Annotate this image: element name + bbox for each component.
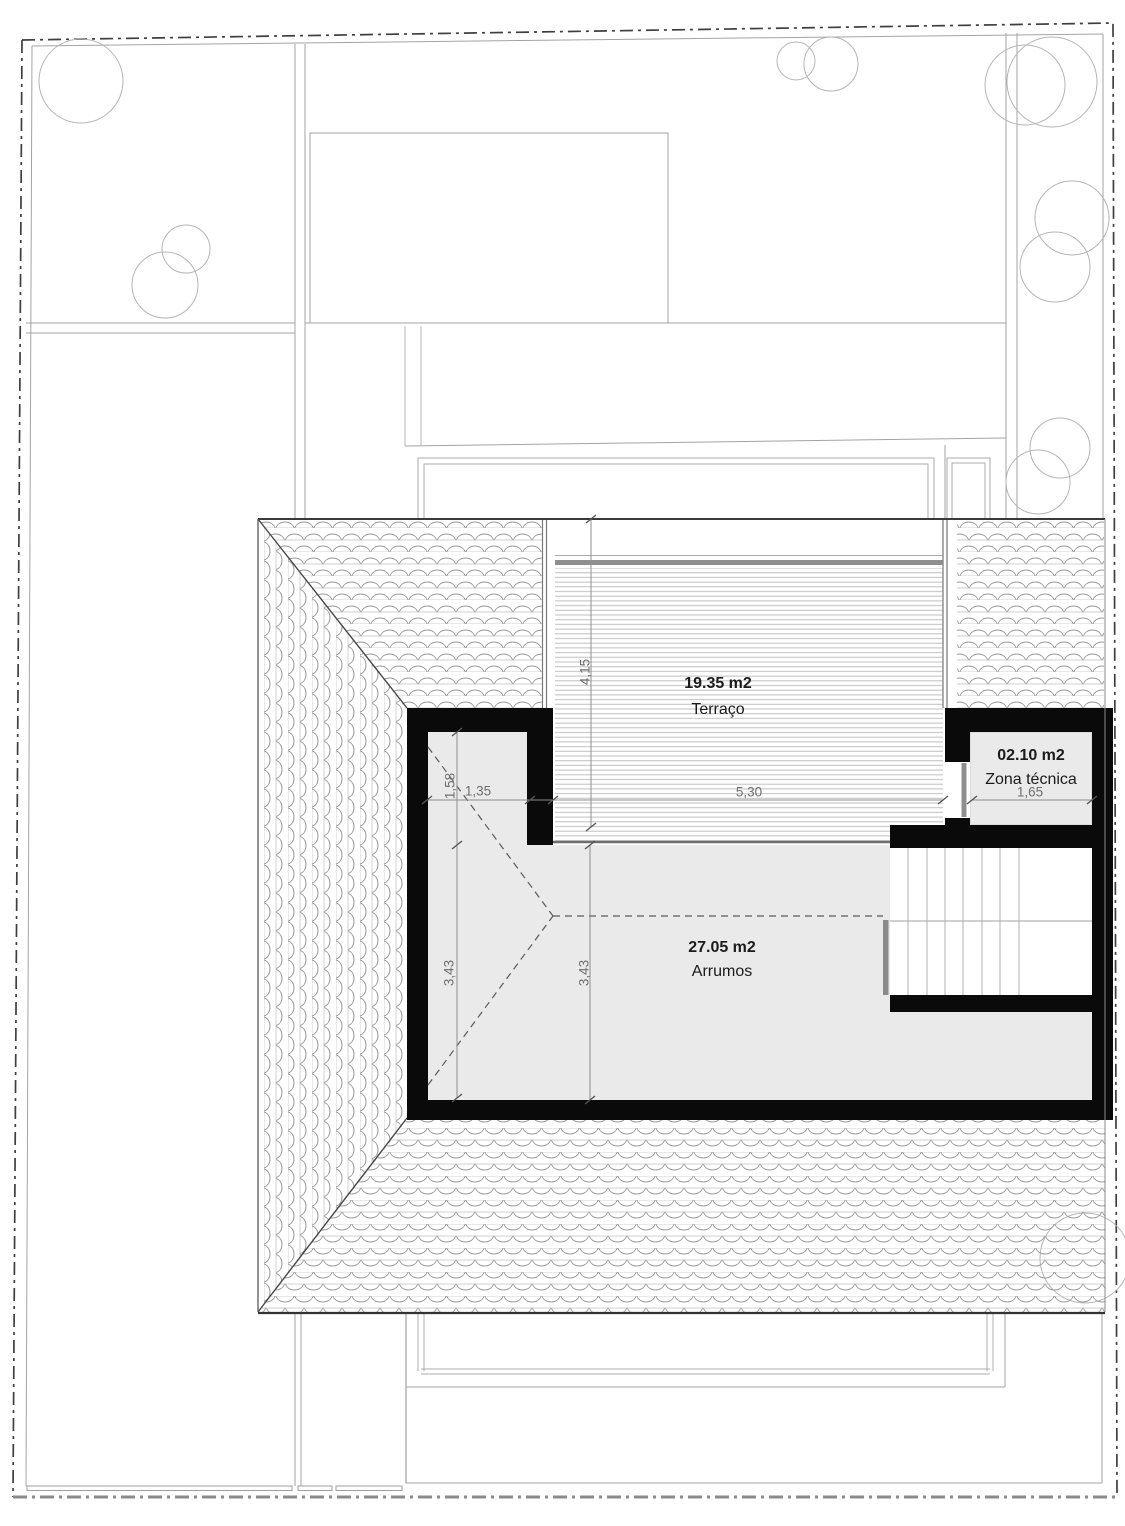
dim-nook-width: 1,35 [465,784,491,798]
tree-icon [162,225,210,273]
dim-nook-depth: 1,58 [443,773,457,799]
door [945,762,970,818]
tree-icon [1006,450,1070,514]
dim-terrace-depth: 4,15 [578,659,592,685]
dim-room-depth-left: 3,43 [442,960,456,986]
staircase [883,848,1092,995]
tree-icon [1030,418,1090,478]
roof-right [957,520,1104,708]
tree-icon [1007,37,1097,127]
dim-room-depth-mid: 3,43 [577,960,591,986]
floor-plan-canvas: 19.35 m2 Terraço 27.05 m2 Arrumos 02.10 … [0,0,1125,1526]
room-zona-area: 02.10 m2 [997,748,1065,764]
roof-bottom [258,1120,1105,1312]
room-arrumos-area: 27.05 m2 [688,940,756,956]
stair-handrail [883,920,889,995]
tree-icon [804,37,858,91]
tree-icon [1035,181,1109,255]
tree-icon [985,45,1065,125]
dim-terrace-width: 5,30 [736,785,762,799]
door-leaf [962,763,967,817]
room-terraco-name: Terraço [691,702,744,718]
room-terraco-area: 19.35 m2 [684,676,752,692]
dim-zona-width: 1,65 [1017,785,1043,799]
tree-icon [132,252,198,318]
room-arrumos-name: Arrumos [692,964,752,980]
tree-icon [1020,232,1090,302]
tree-icon [39,39,123,123]
floor-plan-drawing [0,0,1125,1526]
